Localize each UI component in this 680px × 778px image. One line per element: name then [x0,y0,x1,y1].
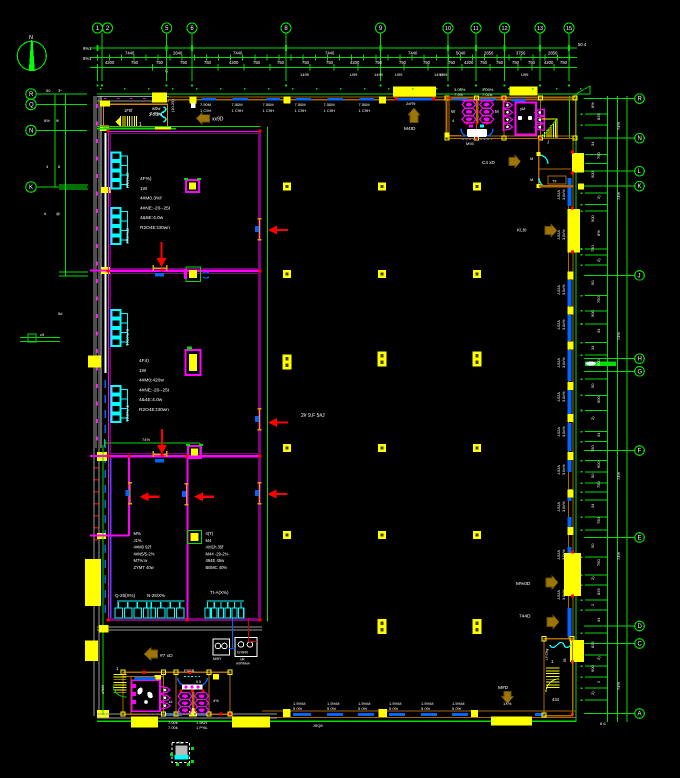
svg-text:4%: 4% [213,698,219,703]
svg-text:w0w: w0w [152,106,161,111]
svg-text:7440: 7440 [325,51,335,56]
svg-text:9!: 9! [56,118,59,123]
svg-text:3.0x%: 3.0x% [562,549,566,560]
svg-text:M93: M93 [466,141,475,146]
svg-text:R2O4E:t30wn: R2O4E:t30wn [139,407,169,413]
svg-text:J-02A: J-02A [557,502,561,512]
svg-text:TI-A(X%): TI-A(X%) [210,590,229,595]
svg-text:750: 750 [590,445,595,452]
svg-text:900: 900 [596,396,601,403]
svg-text:U99: U99 [395,72,403,77]
svg-text:2850: 2850 [484,51,494,56]
svg-text:(10.29): (10.29) [170,99,175,112]
svg-text:M%: M% [134,531,141,536]
svg-text:9%1: 9%1 [83,46,92,51]
svg-text:5 0%: 5 0% [327,706,337,711]
svg-text:750: 750 [528,60,536,65]
svg-text:3.0x%: 3.0x% [562,589,566,600]
svg-text:750: 750 [302,60,310,65]
svg-text:1.5KR: 1.5KR [196,720,207,725]
svg-text:@: @ [56,211,60,216]
svg-text:825: 825 [590,641,595,648]
svg-text:2# 9.F 5#J: 2# 9.F 5#J [301,413,325,419]
svg-text:6 6: 6 6 [600,721,606,726]
svg-text:750: 750 [375,60,383,65]
svg-text:J-02A: J-02A [557,358,561,368]
svg-text:900: 900 [596,359,601,366]
svg-text:13: 13 [537,26,543,32]
svg-text:G%R0: G%R0 [237,651,248,655]
svg-text:750: 750 [480,60,488,65]
svg-text:3.0x%: 3.0x% [562,426,566,437]
svg-text:750: 750 [496,60,504,65]
svg-text:5#: 5# [58,311,63,316]
svg-text:LF C%y: LF C%y [545,648,549,660]
svg-text:750: 750 [399,60,407,65]
svg-text:1F0f: 1F0f [124,108,133,113]
svg-text:ZYMT 40w: ZYMT 40w [134,565,155,570]
svg-text:M: M [530,177,533,182]
svg-text:C4 xD: C4 xD [482,160,495,165]
svg-text:TF: TF [552,179,557,184]
svg-text:750: 750 [131,60,139,65]
svg-text:74%: 74% [616,332,621,340]
svg-text:1 C9H: 1 C9H [263,108,274,113]
svg-text:3.0x%: 3.0x% [562,229,566,240]
svg-text:Q: Q [29,103,34,109]
svg-text:750: 750 [326,60,334,65]
svg-text:750: 750 [590,245,595,252]
svg-text:50: 50 [590,280,595,285]
svg-text:15: 15 [566,26,572,32]
svg-text:34: 34 [590,141,595,146]
svg-text:4(T): 4(T) [206,531,214,536]
svg-text:4#N5/5-2%: 4#N5/5-2% [134,551,155,556]
svg-text:900: 900 [596,461,601,468]
svg-text:7RX%D: 7RX%D [125,172,130,189]
svg-text:4200: 4200 [464,60,474,65]
svg-text:4F%): 4F%) [140,176,152,182]
svg-text:1499: 1499 [300,72,310,77]
svg-text:7.50M: 7.50M [324,102,335,107]
svg-text:750: 750 [512,60,520,65]
svg-text:5 0%: 5 0% [452,706,462,711]
svg-text:74%: 74% [616,472,621,480]
svg-text:750: 750 [596,517,601,524]
svg-text:M: M [530,156,533,161]
svg-text:12: 12 [502,26,508,32]
svg-text:34: 34 [596,432,601,437]
svg-text:750: 750 [277,60,285,65]
svg-text:J-02A: J-02A [557,320,561,330]
svg-text:N-25/X%: N-25/X% [147,593,165,598]
svg-text:750: 750 [180,60,188,65]
svg-text:7440: 7440 [408,51,418,56]
svg-text:750: 750 [253,60,261,65]
svg-text:J-02A: J-02A [557,427,561,437]
svg-text:3.0x%: 3.0x% [562,319,566,330]
svg-text:50: 50 [590,473,595,478]
svg-text:J1%: J1% [134,538,142,543]
svg-text:BBMC 40%: BBMC 40% [206,565,228,570]
svg-text:yM: yM [520,106,525,111]
svg-text:5 0%: 5 0% [421,706,431,711]
svg-text:R2O4E:t30wn: R2O4E:t30wn [140,225,170,231]
svg-text:8%: 8% [44,118,50,123]
svg-text:3.0x%: 3.0x% [562,284,566,295]
svg-text:J: J [547,140,549,145]
svg-text:900: 900 [590,310,595,317]
svg-text:50: 50 [590,543,595,548]
svg-text:J9Q8: J9Q8 [313,723,323,728]
svg-text:F5GB: F5GB [184,668,195,673]
svg-text:2850: 2850 [548,51,558,56]
svg-text:34: 34 [590,345,595,350]
svg-text:4&4E:4.0w: 4&4E:4.0w [139,397,163,403]
svg-text:1 C9H: 1 C9H [324,108,335,113]
svg-text:7.50M: 7.50M [232,102,243,107]
svg-text:M9R: M9R [213,657,221,661]
svg-text:J-02A: J-02A [557,392,561,402]
svg-text:7.50M: 7.50M [359,102,370,107]
svg-text:74%: 74% [142,437,150,442]
svg-text:J-02A: J-02A [557,590,561,600]
svg-text:4200: 4200 [350,60,360,65]
svg-text:KLt0: KLt0 [517,228,527,233]
svg-text:750: 750 [448,60,456,65]
svg-text:900: 900 [590,215,595,222]
svg-text:3.0x%: 3.0x% [562,189,566,200]
svg-text:8%: 8% [590,102,595,108]
svg-text:7.00k: 7.00k [168,720,178,725]
svg-text:50: 50 [46,88,51,93]
svg-text:xx9D: xx9D [212,117,224,123]
svg-text:825: 825 [596,588,601,595]
svg-text:7.50M: 7.50M [200,102,211,107]
svg-text:74%: 74% [616,192,621,200]
svg-text:U99: U99 [440,72,448,77]
svg-text:1W: 1W [140,186,148,192]
svg-text:3.0x%: 3.0x% [562,357,566,368]
svg-text:1 C9H: 1 C9H [295,108,306,113]
svg-text:N: N [29,35,33,41]
svg-text:744D: 744D [519,614,531,620]
svg-text:x%M: x%M [100,685,105,694]
svg-text:R: R [29,92,34,98]
svg-text:N: N [638,136,642,142]
svg-text:900: 900 [590,171,595,178]
svg-text:4#M0 92f: 4#M0 92f [134,545,152,550]
svg-text:34: 34 [590,503,595,508]
svg-text:J-02A: J-02A [557,190,561,200]
svg-text:3*: 3* [58,88,62,93]
svg-text:M44 -29-2%: M44 -29-2% [206,551,229,556]
svg-text:x%x: x%x [176,740,184,745]
svg-text:TXX%-9: TXX%-9 [125,329,130,346]
svg-text:34: 34 [596,617,601,622]
svg-text:9%1: 9%1 [83,56,92,61]
svg-text:J: J [638,273,641,279]
svg-text:4#NE:-20--25t: 4#NE:-20--25t [139,387,170,393]
svg-text:3750: 3750 [516,51,526,56]
svg-text:M7%:w: M7%:w [134,558,149,563]
svg-text:4#NE:-20--25t: 4#NE:-20--25t [140,205,171,211]
svg-text:750: 750 [156,60,164,65]
svg-text:1W: 1W [139,368,147,374]
svg-text:74%: 74% [616,552,621,560]
svg-text:w9%ww: w9%ww [236,662,250,666]
svg-text:750: 750 [596,559,601,566]
svg-text:750: 750 [596,481,601,488]
svg-text:7.50M: 7.50M [263,102,274,107]
svg-text:M4tD: M4tD [404,126,416,132]
svg-text:7RX%D: 7RX%D [125,227,130,244]
svg-text:J-02A: J-02A [557,285,561,295]
svg-text:J-02A: J-02A [557,550,561,560]
svg-text:750: 750 [596,152,601,159]
svg-text:TXX%-4: TXX%-4 [125,405,130,422]
svg-text:R: R [638,97,643,103]
svg-text:750: 750 [204,60,212,65]
svg-text:85: 85 [563,658,567,662]
svg-text:1 C9H: 1 C9H [200,108,211,113]
svg-text:M%0D: M%0D [516,581,531,587]
svg-text:1 C9H: 1 C9H [232,108,243,113]
svg-text:5 0%: 5 0% [389,706,399,711]
svg-text:11: 11 [473,26,479,32]
svg-text:J-02A: J-02A [557,230,561,240]
svg-text:4200: 4200 [544,60,554,65]
svg-text:10: 10 [445,26,451,32]
svg-text:A: A [638,712,642,718]
svg-text:G: G [638,369,643,375]
svg-text:750: 750 [560,60,568,65]
svg-text:50.4: 50.4 [578,42,587,47]
svg-text:7.00k: 7.00k [168,725,178,730]
svg-text:74%: 74% [616,682,621,690]
svg-text:M4: M4 [206,538,212,543]
svg-text:N: N [29,129,33,135]
svg-text:Q-25(X%): Q-25(X%) [115,593,136,598]
svg-text:4#M0:420w: 4#M0:420w [139,378,164,384]
svg-text:4200: 4200 [229,60,239,65]
svg-text:7.02A: 7.02A [482,92,493,97]
svg-text:74%: 74% [616,122,621,130]
svg-text:AM1h.35f: AM1h.35f [206,545,225,550]
svg-text:1499: 1499 [374,72,384,77]
svg-text:750: 750 [423,60,431,65]
svg-text:#7 xD: #7 xD [160,653,173,659]
svg-text:7440: 7440 [233,51,243,56]
svg-text:H: H [638,357,642,363]
svg-text:2640: 2640 [173,51,183,56]
svg-text:5 0%: 5 0% [293,706,303,711]
svg-text:3.0x%: 3.0x% [562,391,566,402]
svg-text:825: 825 [596,113,601,120]
svg-text:34: 34 [596,328,601,333]
svg-text:50: 50 [590,383,595,388]
svg-text:1#: 1# [168,699,173,704]
svg-text:M: M [495,109,499,114]
svg-text:1 C9H: 1 C9H [359,108,370,113]
svg-text:2 0.3m: 2 0.3m [149,112,162,117]
svg-text:K: K [638,184,642,190]
svg-text:5040: 5040 [456,51,466,56]
svg-text:F: F [638,449,642,455]
svg-text:4F4): 4F4) [139,358,149,364]
svg-text:5 5: 5 5 [196,680,201,684]
svg-text:7.50M: 7.50M [295,102,306,107]
svg-text:5 0%: 5 0% [358,706,368,711]
svg-text:3.0x%: 3.0x% [562,501,566,512]
svg-text:1 P%L: 1 P%L [196,725,209,730]
svg-text:3.0x%: 3.0x% [562,464,566,475]
svg-text:C: C [638,642,643,648]
svg-text:7.5%: 7.5% [454,92,464,97]
svg-text:494E 45w: 494E 45w [206,558,226,563]
svg-text:4#M0.3%f: 4#M0.3%f [140,196,162,202]
svg-text:U99: U99 [521,72,529,77]
svg-text:D: D [638,624,643,630]
svg-text:7440: 7440 [125,51,135,56]
svg-text:2xR9: 2xR9 [406,101,416,106]
svg-text:8%: 8% [596,230,601,236]
svg-text:J-02A: J-02A [557,465,561,475]
svg-text:4200: 4200 [105,60,115,65]
svg-text:U99: U99 [350,72,358,77]
svg-text:M#D: M#D [498,685,509,691]
svg-text:900: 900 [590,665,595,672]
svg-text:750: 750 [596,296,601,303]
svg-text:K: K [29,185,33,191]
svg-text:E: E [638,536,642,542]
svg-text:434: 434 [552,697,560,702]
svg-text:4&5E:4.0w: 4&5E:4.0w [140,215,164,221]
